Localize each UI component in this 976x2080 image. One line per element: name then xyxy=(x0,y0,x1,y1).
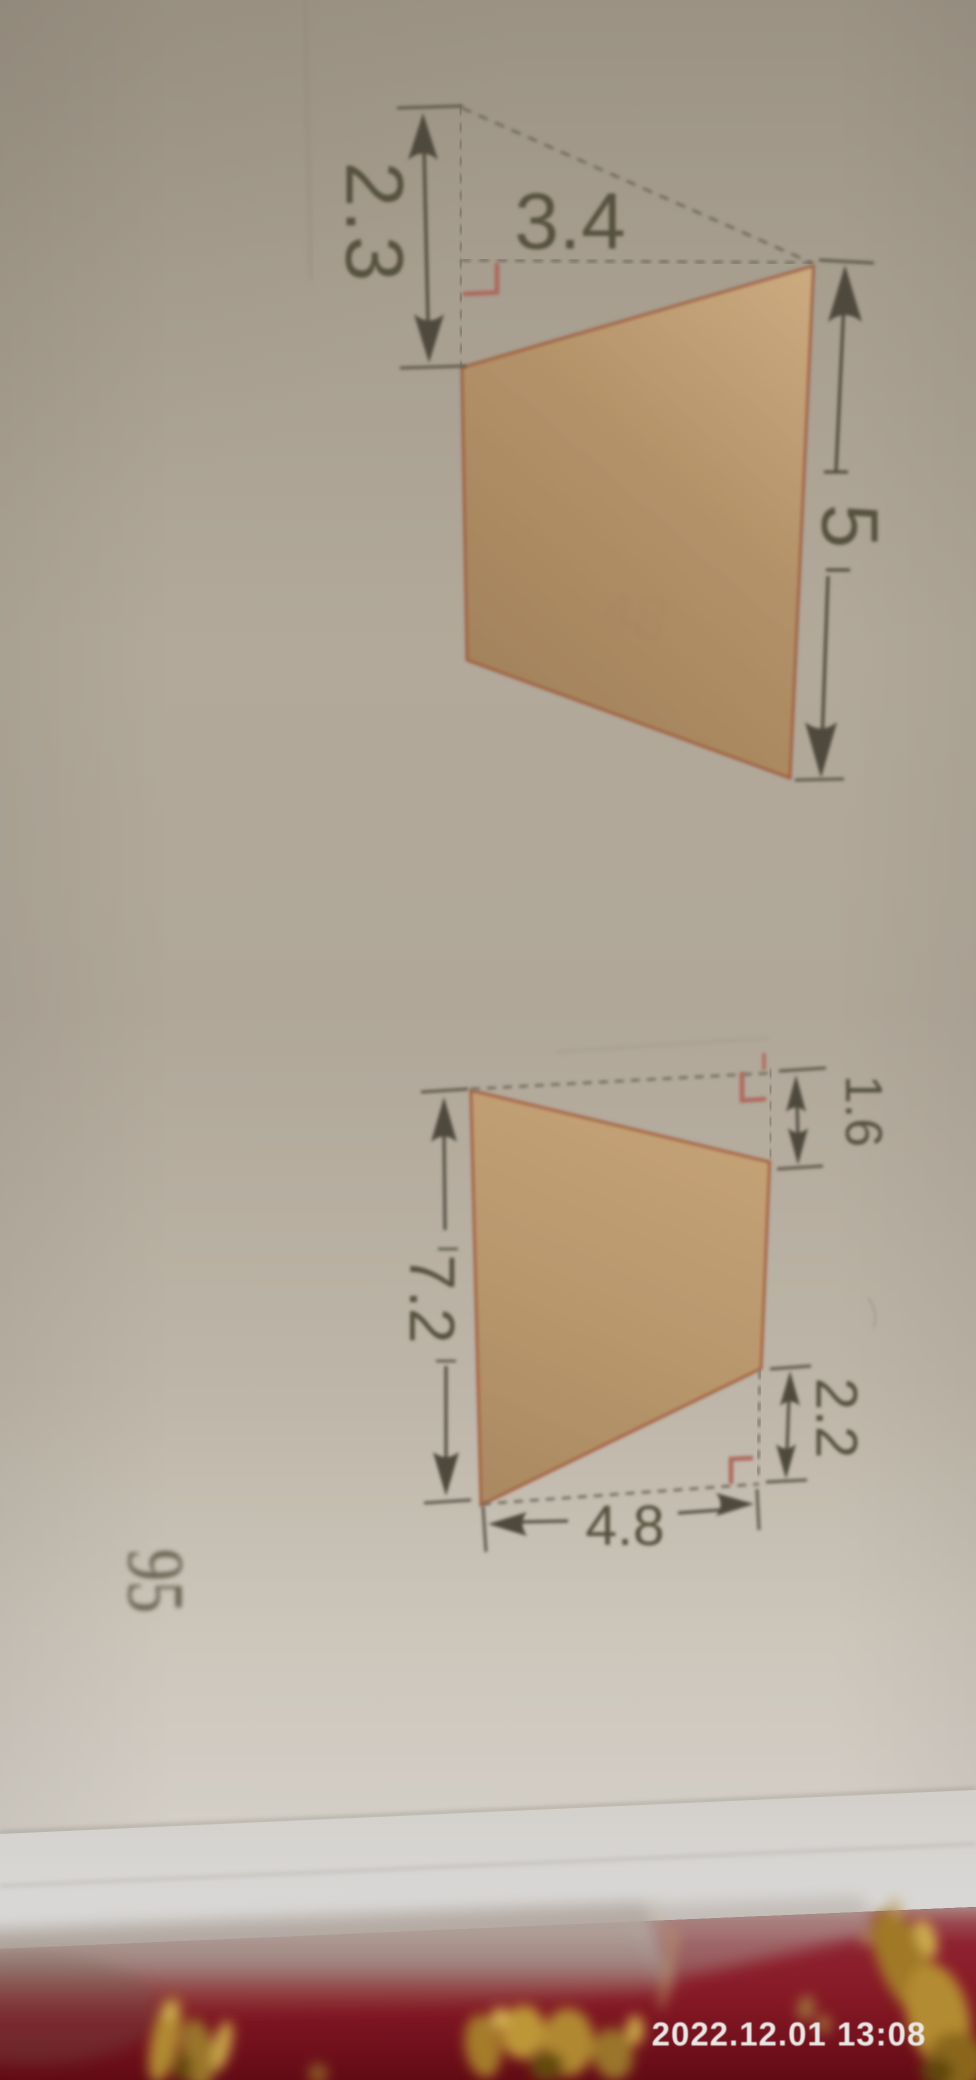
svg-text:2.2: 2.2 xyxy=(804,1378,869,1459)
svg-text:7.2: 7.2 xyxy=(396,1255,468,1344)
svg-text:3.4: 3.4 xyxy=(514,177,625,266)
svg-text:95: 95 xyxy=(111,1549,199,1613)
svg-text:2.3: 2.3 xyxy=(329,162,420,285)
svg-text:5: 5 xyxy=(806,504,895,549)
svg-text:48: 48 xyxy=(595,575,674,654)
svg-text:4.8: 4.8 xyxy=(585,1494,664,1558)
svg-text:2022.12.01 13:08: 2022.12.01 13:08 xyxy=(652,2016,927,2053)
svg-text:1.6: 1.6 xyxy=(834,1075,892,1147)
